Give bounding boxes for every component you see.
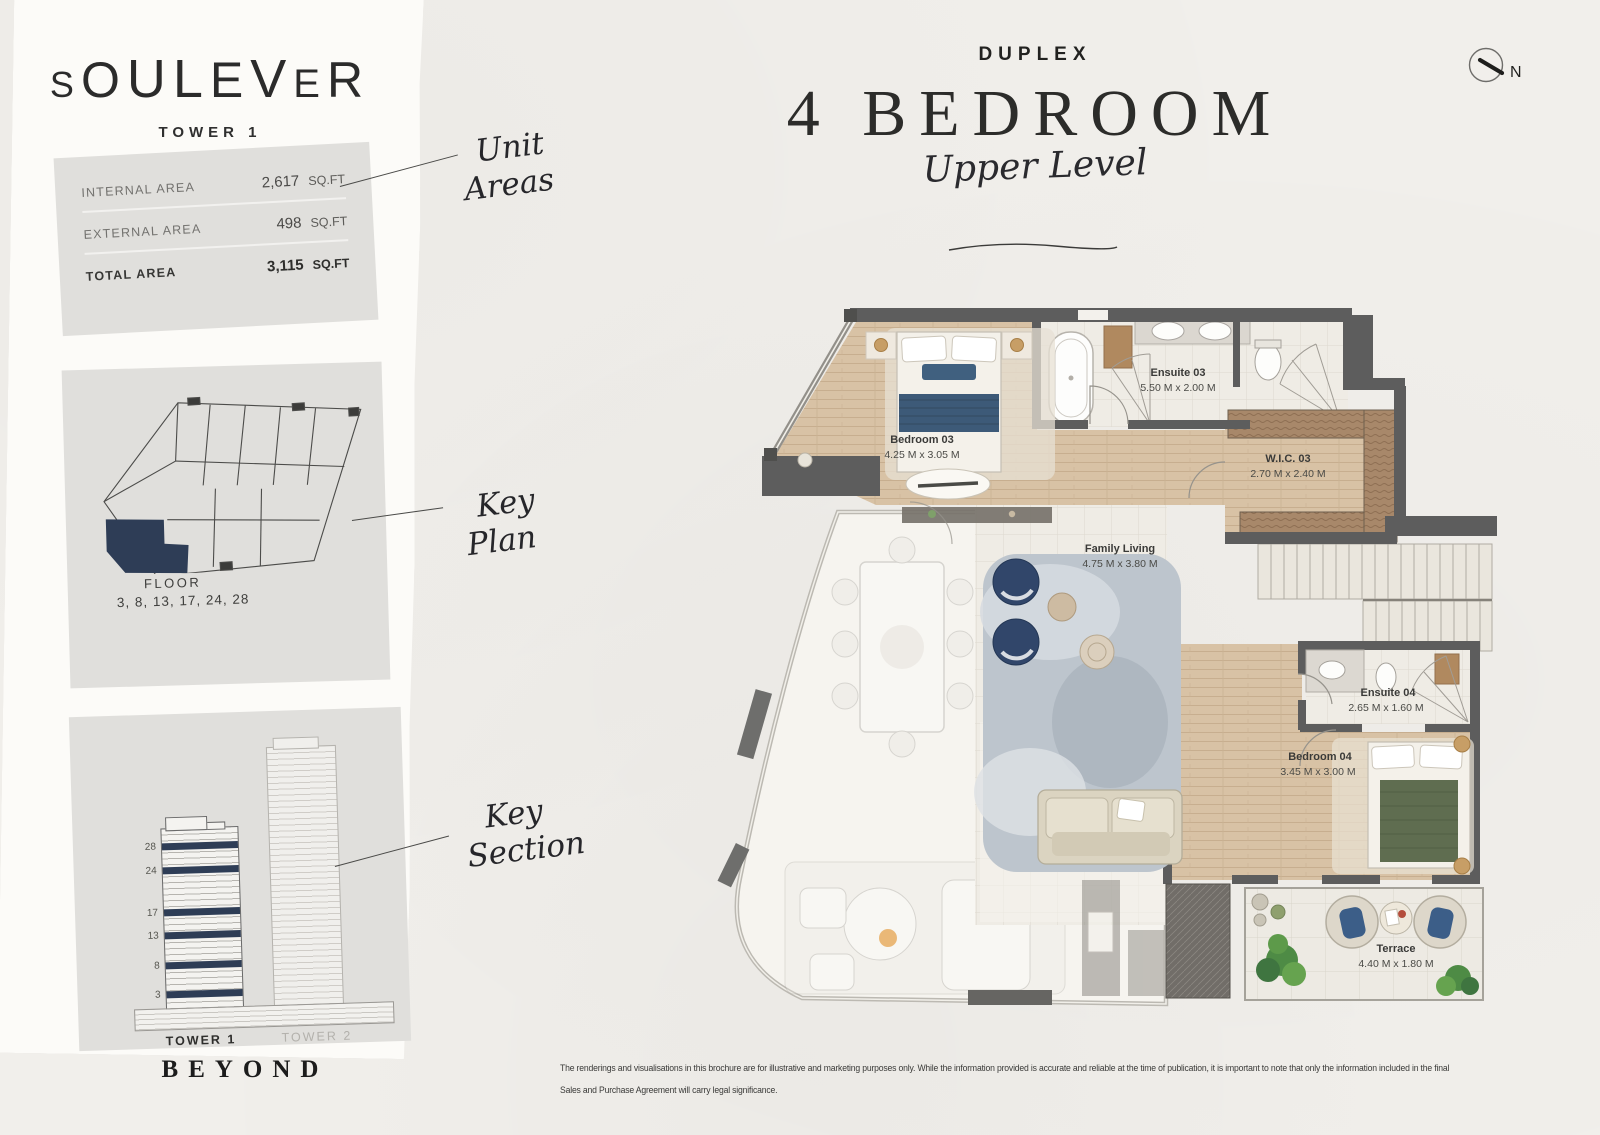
bedroom-04-dims: 3.45 M x 3.00 M — [1280, 766, 1355, 778]
tv-console — [902, 507, 1052, 523]
key-plan-panel: FLOOR 3, 8, 13, 17, 24, 28 — [62, 362, 391, 689]
total-area-unit: SQ.FT — [312, 256, 349, 272]
side-table — [1048, 593, 1076, 621]
plan-category: DUPLEX — [735, 44, 1335, 66]
north-needle — [1480, 60, 1502, 73]
disclaimer-line2: Sales and Purchase Agreement will carry … — [560, 1080, 1449, 1102]
ensuite-03-dims: 5.50 M x 2.00 M — [1140, 382, 1215, 394]
unit-areas-panel: INTERNAL AREA 2,617SQ.FT EXTERNAL AREA 4… — [54, 142, 379, 336]
floor-mark-13: 13 — [139, 931, 159, 943]
key-plan-floor-label: FLOOR — [67, 573, 277, 594]
brand-logo: SOULEVER — [0, 52, 420, 106]
key-section-annotation-line2: Section — [465, 825, 587, 876]
key-plan-annotation-line2: Plan — [465, 519, 541, 565]
floor-mark-17: 17 — [138, 908, 158, 920]
terrace-label: Terrace — [1377, 943, 1416, 955]
family-living — [974, 554, 1182, 872]
wic-03-label: W.I.C. 03 — [1265, 453, 1310, 465]
vanity-basin — [1152, 322, 1184, 340]
family-living-dims: 4.75 M x 3.80 M — [1082, 558, 1157, 570]
floor-mark-24: 24 — [137, 866, 157, 878]
floor-mark-8: 8 — [140, 961, 160, 973]
floor-plan: Bedroom 03 4.25 M x 3.05 M Ensuite 03 5.… — [680, 292, 1500, 1020]
page-title: 4 BEDROOM — [660, 76, 1410, 152]
bedroom-03-dims: 4.25 M x 3.05 M — [884, 449, 959, 461]
total-area-value: 3,115 — [267, 256, 305, 275]
bed-04 — [1368, 742, 1470, 868]
external-area-value: 498 — [276, 215, 302, 233]
disclaimer: The renderings and visualisations in thi… — [560, 1058, 1449, 1102]
wall-corner-block — [762, 456, 880, 496]
key-section-tower2 — [266, 745, 344, 1007]
ensuite-04-dims: 2.65 M x 1.60 M — [1348, 702, 1423, 714]
toilet — [1255, 344, 1281, 380]
title-underline-swoosh — [945, 238, 1120, 260]
highlight-floor-3: 3 — [166, 989, 242, 998]
total-area-label: TOTAL AREA — [85, 265, 176, 284]
floor-mark-3: 3 — [140, 990, 160, 1002]
terrace — [1245, 888, 1483, 1000]
wic-03-dims: 2.70 M x 2.40 M — [1250, 468, 1325, 480]
highlight-floor-28: 28 — [162, 841, 238, 850]
internal-area-label: INTERNAL AREA — [81, 180, 195, 200]
family-living-label: Family Living — [1085, 543, 1155, 555]
bedroom-03-label: Bedroom 03 — [890, 434, 954, 446]
north-arrow: N — [1462, 40, 1547, 98]
staircase — [1258, 544, 1492, 651]
vanity-basin — [1319, 661, 1345, 679]
ghost-fire-glow — [879, 929, 897, 947]
ensuite-04-label: Ensuite 04 — [1360, 687, 1416, 699]
bedroom-04 — [1332, 736, 1474, 874]
key-section-panel: 28 24 17 13 8 3 TOWER 1 TOWER 2 — [69, 707, 411, 1051]
key-section-annotation: Key Section — [461, 788, 587, 876]
key-plan-drawing — [62, 362, 388, 577]
highlight-floor-13: 13 — [165, 930, 241, 939]
beyond-logo: BEYOND — [110, 1056, 380, 1084]
highlight-floor-8: 8 — [166, 960, 242, 969]
lamp — [1454, 858, 1470, 874]
key-plan-annotation: Key Plan — [461, 482, 542, 565]
highlight-floor-17: 17 — [164, 907, 240, 916]
internal-area-value: 2,617 — [261, 173, 299, 192]
ensuite-03-label: Ensuite 03 — [1150, 367, 1205, 379]
shower-towel — [1104, 326, 1132, 368]
sofa — [1038, 790, 1182, 864]
bed-accent-pillow — [922, 364, 976, 380]
key-section-tower1: 28 24 17 13 8 3 — [160, 826, 244, 1010]
floor-mark-28: 28 — [136, 842, 156, 854]
vanity-basin — [1199, 322, 1231, 340]
brand-tower-label: TOWER 1 — [0, 124, 420, 141]
lamp — [875, 339, 888, 352]
unit-areas-annotation: Unit Areas — [458, 125, 556, 210]
lamp — [1011, 339, 1024, 352]
lamp — [1454, 736, 1470, 752]
key-plan-unit-highlight — [106, 517, 190, 575]
highlight-floor-24: 24 — [163, 865, 239, 874]
corridor-floor — [1037, 430, 1227, 505]
bottom-wall-segment — [968, 990, 1052, 1005]
coffee-table — [1080, 635, 1114, 669]
wardrobe-units — [1166, 884, 1230, 998]
terrace-dims: 4.40 M x 1.80 M — [1358, 958, 1433, 970]
bedroom-04-label: Bedroom 04 — [1288, 751, 1352, 763]
brochure-page: { "sidebar": { "brand": "SOULEVER", "tow… — [0, 0, 1600, 1135]
disclaimer-line1: The renderings and visualisations in thi… — [560, 1058, 1449, 1080]
key-plan-floor-numbers: 3, 8, 13, 17, 24, 28 — [68, 590, 298, 611]
unit-areas-annotation-line2: Areas — [462, 162, 556, 210]
external-area-label: EXTERNAL AREA — [83, 222, 202, 242]
external-area-unit: SQ.FT — [310, 214, 347, 230]
north-label: N — [1510, 64, 1522, 81]
